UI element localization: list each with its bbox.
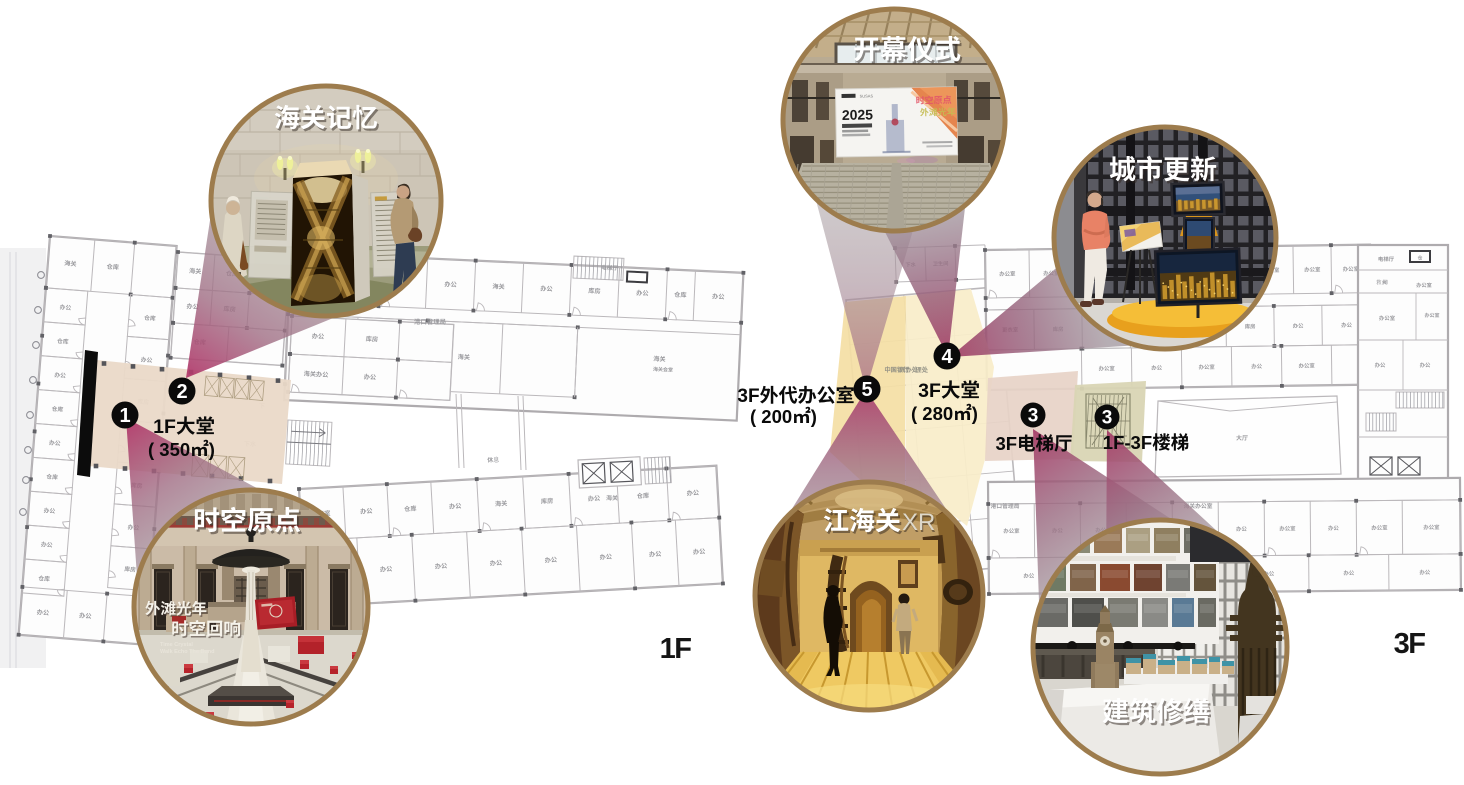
- svg-text:1F-3F: 1F-3F: [1103, 432, 1152, 453]
- svg-text:4: 4: [941, 346, 953, 368]
- svg-text:息: 息: [493, 456, 499, 464]
- svg-text:2025: 2025: [842, 106, 874, 123]
- svg-text:SUSAS: SUSAS: [859, 93, 873, 98]
- svg-text:XR: XR: [902, 509, 935, 536]
- svg-text:2: 2: [176, 381, 187, 403]
- svg-text:Walk Echo The Bund: Walk Echo The Bund: [160, 649, 215, 655]
- svg-text:( 350: ( 350: [148, 439, 190, 460]
- svg-text:( 280: ( 280: [911, 403, 953, 424]
- svg-text:Time Crystal: Time Crystal: [160, 642, 193, 648]
- svg-text:5: 5: [861, 379, 872, 401]
- svg-text:3: 3: [1028, 406, 1039, 427]
- svg-text:): ): [972, 403, 978, 424]
- svg-text:救火: 救火: [1376, 278, 1386, 286]
- svg-text:1F: 1F: [660, 633, 692, 665]
- svg-text:3F: 3F: [918, 380, 941, 402]
- svg-text:3F: 3F: [1394, 628, 1426, 660]
- svg-text:1: 1: [119, 405, 130, 427]
- svg-text:1F: 1F: [153, 416, 176, 438]
- svg-text:): ): [811, 406, 817, 427]
- svg-text:): ): [209, 439, 215, 460]
- svg-text:处: 处: [921, 366, 929, 374]
- svg-text:3F: 3F: [737, 386, 759, 407]
- svg-text:( 200: ( 200: [750, 406, 792, 427]
- svg-text:3F: 3F: [996, 433, 1018, 454]
- svg-text:3: 3: [1102, 408, 1113, 429]
